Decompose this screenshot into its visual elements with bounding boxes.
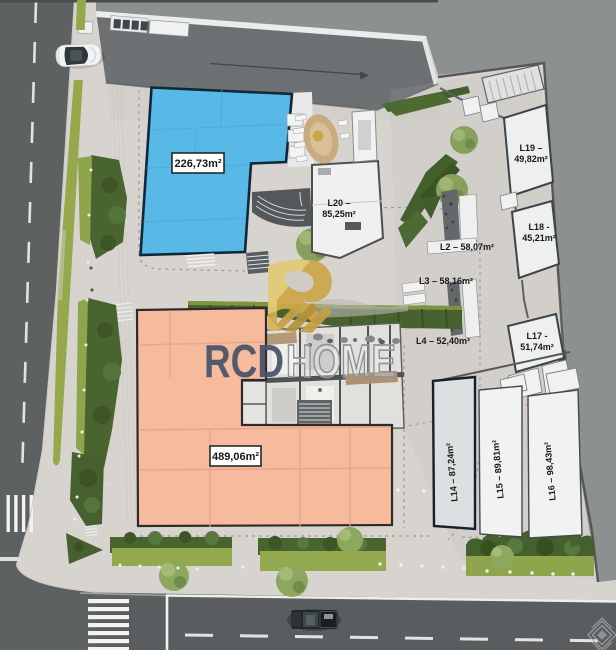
svg-text:L2 – 58,07m²: L2 – 58,07m² xyxy=(440,242,494,252)
svg-text:L19 –: L19 – xyxy=(519,143,542,153)
svg-text:RCD: RCD xyxy=(204,335,284,387)
svg-text:L17 -: L17 - xyxy=(526,331,547,341)
svg-text:85,25m²: 85,25m² xyxy=(322,209,356,219)
svg-text:226,73m²: 226,73m² xyxy=(174,158,221,170)
svg-text:489,06m²: 489,06m² xyxy=(212,451,259,463)
svg-text:45,21m²: 45,21m² xyxy=(522,233,556,243)
svg-text:49,82m²: 49,82m² xyxy=(514,154,548,164)
svg-text:L18 -: L18 - xyxy=(528,222,549,232)
svg-text:L3 – 58,16m²: L3 – 58,16m² xyxy=(419,276,473,286)
svg-text:L20 –: L20 – xyxy=(327,198,350,208)
svg-text:HOME: HOME xyxy=(286,335,396,387)
svg-text:51,74m²: 51,74m² xyxy=(520,342,554,352)
svg-text:L4 – 52,40m²: L4 – 52,40m² xyxy=(416,336,470,346)
